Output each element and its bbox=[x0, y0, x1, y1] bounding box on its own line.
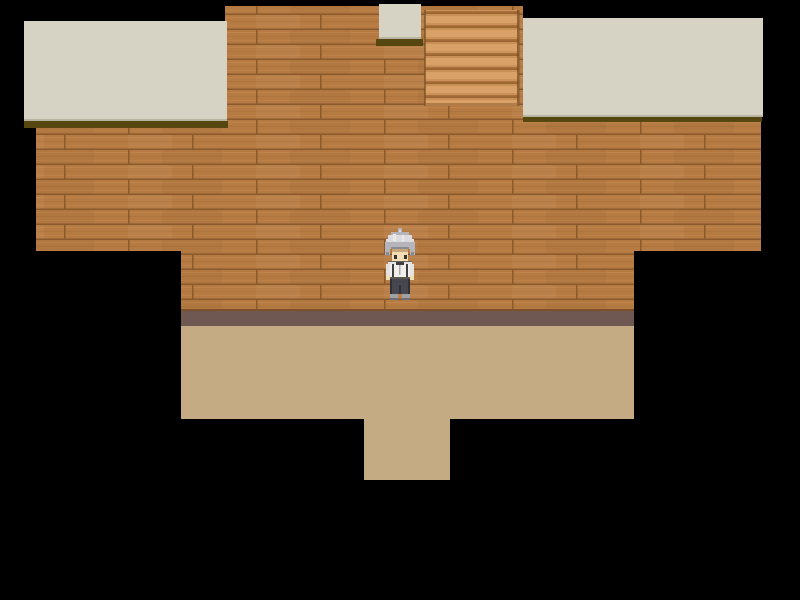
scene-canvas[interactable] bbox=[0, 0, 800, 600]
stairs-right-edge bbox=[517, 10, 520, 106]
hand-left bbox=[386, 276, 390, 280]
stairs-steps[interactable] bbox=[425, 10, 519, 106]
stairs-left-edge bbox=[424, 10, 426, 106]
game-viewport bbox=[0, 0, 800, 600]
ceiling-panel bbox=[523, 18, 763, 117]
face bbox=[392, 249, 408, 262]
ceiling-ledge-small-top bbox=[376, 4, 423, 46]
hand-right bbox=[410, 276, 414, 280]
stairs-bottom-shadow bbox=[425, 103, 519, 106]
ceiling-shadow bbox=[24, 121, 228, 128]
ceiling-panel-edge bbox=[523, 115, 763, 117]
ceiling-ledge-right bbox=[523, 18, 763, 122]
belt bbox=[390, 277, 410, 279]
baseboard-band bbox=[181, 311, 634, 326]
ceiling-panel-edge bbox=[379, 37, 421, 39]
baseboard-seam bbox=[181, 309, 634, 311]
ceiling-ledge-left bbox=[24, 21, 228, 128]
wall-baseboard bbox=[181, 309, 634, 326]
pants bbox=[390, 279, 410, 294]
ceiling-shadow bbox=[376, 39, 423, 46]
floor-exit-south[interactable] bbox=[364, 419, 450, 480]
ceiling-panel-edge bbox=[24, 119, 227, 121]
ceiling-panel bbox=[379, 4, 421, 39]
staircase-strip[interactable] bbox=[424, 10, 520, 106]
torso-shirt bbox=[386, 261, 414, 280]
ceiling-shadow bbox=[523, 117, 762, 122]
ceiling-panel bbox=[24, 21, 227, 121]
floor-main[interactable] bbox=[181, 326, 634, 419]
